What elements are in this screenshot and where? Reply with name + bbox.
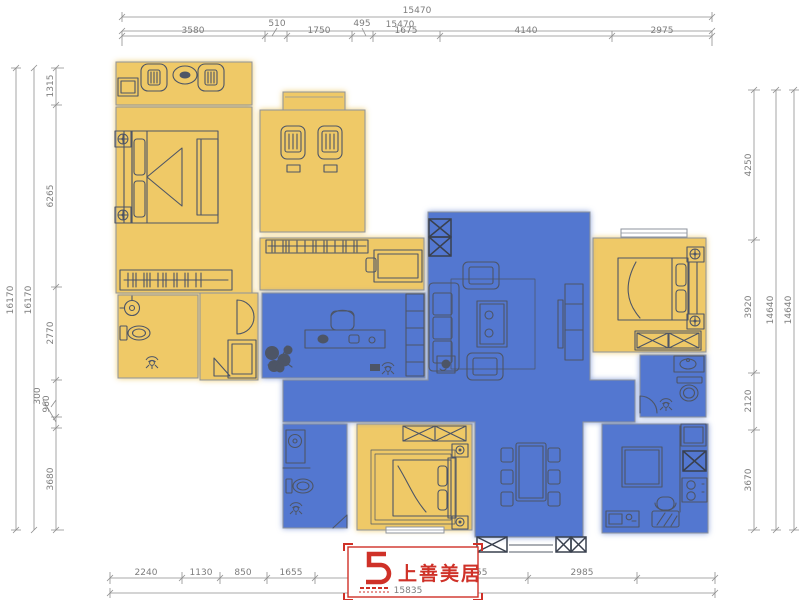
- dim-left-seg: 1315: [46, 75, 56, 98]
- dim-top-total-outer: 15470: [403, 6, 432, 16]
- dim-top-seg: 2975: [651, 26, 674, 36]
- left-dimensions: 16170 16170 1315 6265 2770 300 960 3680: [6, 65, 64, 533]
- dim-top-seg: 1750: [308, 26, 331, 36]
- dim-bottom-seg: 1655: [280, 568, 303, 578]
- dim-right-seg: 3670: [744, 468, 754, 491]
- dim-bottom-total: 15835: [394, 586, 423, 596]
- right-dimensions: 4250 3920 2120 3670 14640 14640: [744, 87, 799, 533]
- dim-left-seg: 2770: [46, 321, 56, 344]
- dim-right-total-outer: 14640: [784, 295, 794, 324]
- dim-top-seg: 4140: [515, 26, 538, 36]
- dim-bottom-seg: 1130: [190, 568, 213, 578]
- study-room-top: [260, 110, 365, 232]
- bathroom-bottom: [283, 424, 347, 528]
- dim-right-total-inner: 14640: [766, 295, 776, 324]
- dim-right-seg: 3920: [744, 295, 754, 318]
- dim-left-total-inner: 16170: [24, 285, 34, 314]
- bay-window-room: [283, 92, 345, 112]
- dim-left-seg: 3680: [46, 467, 56, 490]
- dim-top-seg: 1675: [395, 26, 418, 36]
- dim-right-seg: 4250: [744, 153, 754, 176]
- dim-bottom-seg: 2985: [571, 568, 594, 578]
- dim-top-seg: 510: [268, 19, 285, 29]
- dim-left-total-outer: 16170: [6, 285, 16, 314]
- master-bedroom: [116, 107, 252, 293]
- floor-plan-page: 15470 15470 3580 510 1750 495 1675 4140 …: [0, 0, 800, 600]
- dim-bottom-seg: 2240: [135, 568, 158, 578]
- dim-left-seg: 960: [42, 395, 52, 412]
- top-dimensions: 15470 15470 3580 510 1750 495 1675 4140 …: [119, 6, 715, 46]
- logo-text: 上善美居: [398, 562, 482, 585]
- column-icon: [556, 537, 586, 552]
- bottom-total-label: 15835: [394, 586, 423, 596]
- floor-plan-svg: 15470 15470 3580 510 1750 495 1675 4140 …: [0, 0, 800, 600]
- entry-threshold: [509, 545, 553, 552]
- dim-top-seg: 495: [353, 19, 370, 29]
- dim-right-seg: 2120: [744, 389, 754, 412]
- dim-top-seg: 3580: [182, 26, 205, 36]
- dim-bottom-seg: 850: [234, 568, 251, 578]
- printer-icon: [370, 364, 380, 371]
- dim-left-seg: 6265: [46, 185, 56, 208]
